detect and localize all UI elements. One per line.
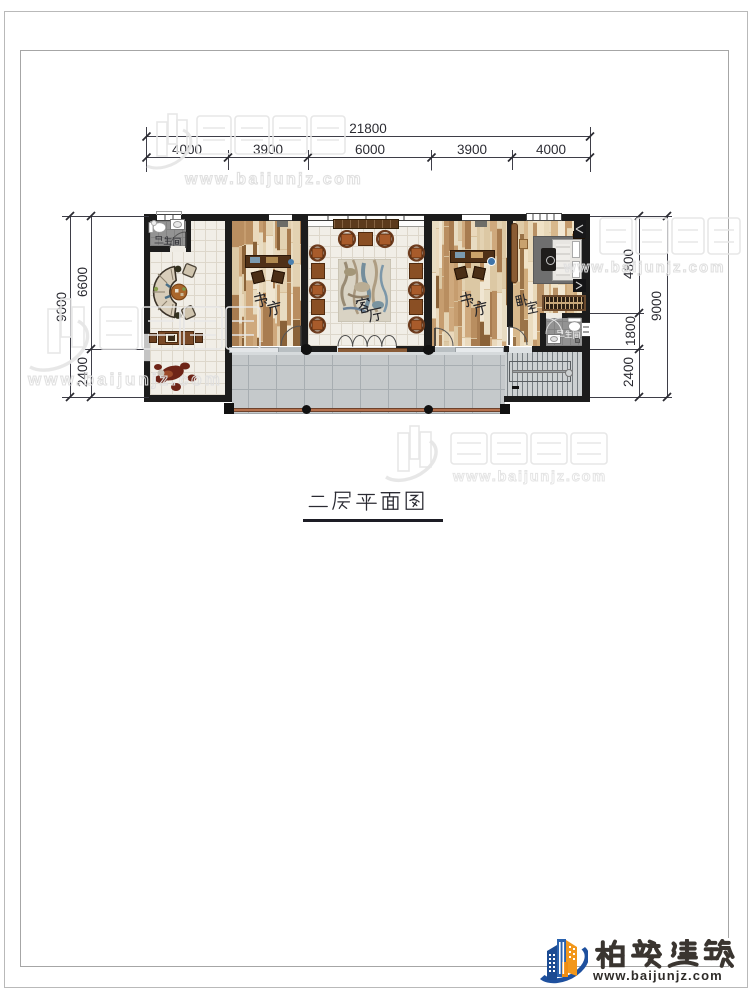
svg-text:1800: 1800 [623,316,638,346]
svg-text:2400: 2400 [621,357,636,387]
svg-text:www.baijunjz.com: www.baijunjz.com [563,259,725,276]
svg-text:www.baijunjz.com: www.baijunjz.com [452,469,607,485]
svg-text:www.baijunjz.com: www.baijunjz.com [184,171,363,188]
svg-text:9000: 9000 [649,291,664,321]
svg-text:4000: 4000 [536,142,566,157]
svg-text:6600: 6600 [75,267,90,297]
svg-text:www.baijunjz.com: www.baijunjz.com [27,370,223,389]
svg-text:3900: 3900 [457,142,487,157]
